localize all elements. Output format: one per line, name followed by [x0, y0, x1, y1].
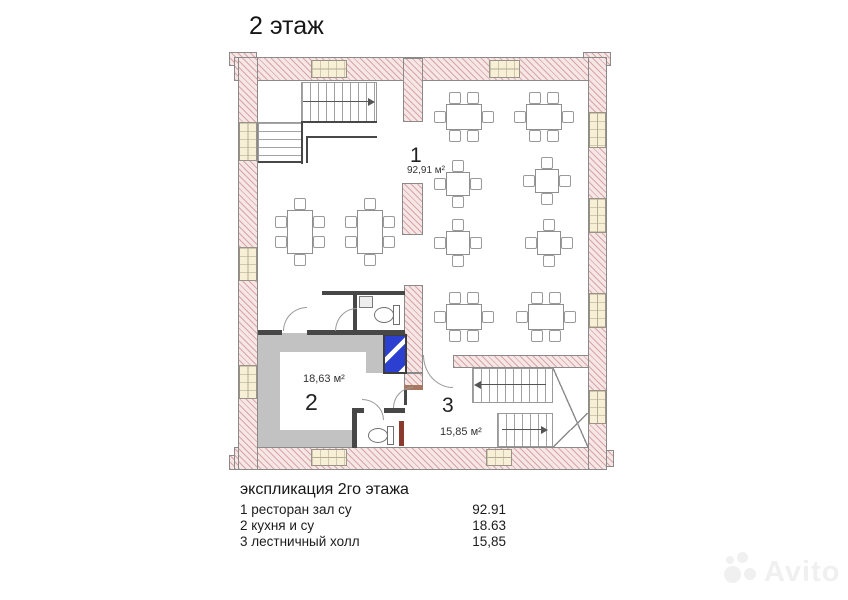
stair-direction-line	[502, 429, 544, 430]
wc2-door-arc	[362, 399, 384, 420]
chair	[313, 236, 325, 248]
interior-pillar	[402, 183, 423, 235]
chair	[525, 237, 537, 249]
chair	[470, 237, 482, 249]
chair	[449, 330, 461, 342]
wc2-duct	[399, 421, 404, 446]
stair-upper-flight-topleft	[301, 82, 377, 122]
legend-room-name: 2 кухня и су	[240, 518, 314, 534]
chair	[547, 92, 559, 104]
legend-room-area: 92.91	[472, 502, 506, 518]
chair	[449, 92, 461, 104]
chair	[275, 216, 287, 228]
dining-table	[446, 104, 482, 130]
chair	[345, 236, 357, 248]
stair-left-flight-topleft	[258, 122, 302, 163]
avito-logo-dot	[726, 556, 734, 564]
dining-table	[535, 169, 559, 193]
wc2-wall-left	[352, 408, 357, 448]
chair	[452, 219, 464, 231]
window	[239, 365, 257, 399]
room3-area: 15,85 м²	[440, 426, 482, 438]
chair	[434, 111, 446, 123]
wc2-wall-top	[384, 408, 405, 413]
chair	[467, 92, 479, 104]
chair	[529, 92, 541, 104]
stair-guard-line	[301, 121, 377, 123]
window	[489, 60, 520, 78]
chair	[313, 216, 325, 228]
chair	[383, 216, 395, 228]
chair	[549, 330, 561, 342]
chair	[467, 292, 479, 304]
wc-vestibule-wall	[322, 291, 405, 295]
room2-area: 18,63 м²	[303, 373, 345, 385]
room2-number: 2	[305, 389, 318, 416]
avito-logo-dot	[724, 566, 741, 583]
window	[589, 390, 606, 424]
stair-guard-line	[306, 136, 377, 138]
exterior-wall-bottom	[234, 447, 606, 470]
room1-area: 92,91 м²	[407, 165, 445, 176]
chair	[547, 130, 559, 142]
kitchen-door-arc	[283, 307, 307, 331]
stair-upper-flight-bottomright	[472, 368, 553, 403]
kitchen-counter-bottom	[258, 430, 354, 447]
chair	[531, 292, 543, 304]
chair	[543, 255, 555, 267]
stair-direction-arrow	[541, 426, 548, 434]
stair-hall-door-arc	[423, 355, 453, 388]
chair	[470, 178, 482, 190]
chair	[529, 130, 541, 142]
legend-row: 1 ресторан зал су 92.91	[240, 502, 506, 518]
chair	[452, 196, 464, 208]
chair	[452, 255, 464, 267]
legend-room-name: 3 лестничный холл	[240, 534, 360, 550]
chair	[516, 311, 528, 323]
legend: экспликация 2го этажа 1 ресторан зал су …	[240, 481, 506, 550]
stair-guard-line	[301, 121, 303, 164]
chair	[364, 254, 376, 266]
sink	[359, 296, 373, 308]
chair	[562, 111, 574, 123]
toilet-tank	[393, 305, 400, 325]
avito-watermark: Avito	[724, 550, 848, 598]
chair	[434, 237, 446, 249]
dining-table	[446, 231, 470, 255]
chair	[467, 330, 479, 342]
toilet-bowl	[374, 307, 394, 323]
chair	[564, 311, 576, 323]
stair-direction-arrow	[368, 98, 375, 106]
chair	[383, 236, 395, 248]
corridor-door-arc	[393, 387, 413, 408]
dining-table	[446, 304, 482, 330]
kitchen-sink-unit	[383, 334, 407, 374]
chair	[482, 311, 494, 323]
chair	[514, 111, 526, 123]
stair-direction-line	[480, 384, 546, 385]
chair	[345, 216, 357, 228]
kitchen-wall	[258, 330, 282, 335]
page-title: 2 этаж	[249, 12, 324, 41]
floor-plan-page: 2 этаж	[0, 0, 848, 600]
dining-table	[537, 231, 561, 255]
interior-pier-top	[403, 58, 423, 122]
chair	[561, 237, 573, 249]
toilet-bowl	[368, 428, 388, 443]
window	[239, 122, 257, 161]
wc1-door-arc	[335, 308, 357, 331]
chair	[434, 178, 446, 190]
chair	[482, 111, 494, 123]
chair	[541, 193, 553, 205]
window	[589, 112, 606, 148]
chair	[467, 130, 479, 142]
avito-logo-dot	[737, 552, 748, 563]
chair	[541, 157, 553, 169]
legend-row: 2 кухня и су 18.63	[240, 518, 506, 534]
chair	[275, 236, 287, 248]
wall-stair-hall-top	[453, 355, 589, 368]
window	[589, 293, 606, 328]
window	[239, 247, 257, 281]
room3-number: 3	[442, 394, 454, 418]
stair-direction-line	[303, 101, 369, 102]
avito-logo-dot	[744, 568, 756, 580]
chair	[523, 175, 535, 187]
chair	[452, 160, 464, 172]
dining-table	[528, 304, 564, 330]
chair	[449, 130, 461, 142]
chair	[434, 311, 446, 323]
window	[589, 198, 606, 233]
dining-table	[446, 172, 470, 196]
legend-title: экспликация 2го этажа	[240, 481, 506, 499]
chair	[364, 198, 376, 210]
dining-table	[526, 104, 562, 130]
legend-room-area: 18.63	[472, 518, 506, 534]
window	[311, 449, 347, 466]
toilet-tank	[387, 426, 394, 445]
stair-guard-line	[258, 161, 303, 163]
legend-row: 3 лестничный холл 15,85	[240, 534, 506, 550]
kitchen-counter-corner	[366, 352, 383, 373]
stair-guard-line	[306, 136, 308, 163]
chair	[559, 175, 571, 187]
legend-room-name: 1 ресторан зал су	[240, 502, 352, 518]
chair	[294, 254, 306, 266]
avito-watermark-text: Avito	[764, 556, 840, 589]
window	[311, 60, 347, 78]
chair	[294, 198, 306, 210]
dining-table	[287, 210, 313, 254]
stair-landing-breakline	[553, 413, 588, 447]
legend-room-area: 15,85	[472, 534, 506, 550]
chair	[543, 219, 555, 231]
dining-table	[357, 210, 383, 254]
chair	[449, 292, 461, 304]
kitchen-counter-top	[280, 333, 383, 352]
chair	[549, 292, 561, 304]
chair	[531, 330, 543, 342]
window	[486, 449, 512, 466]
stair-direction-arrow	[474, 381, 481, 389]
